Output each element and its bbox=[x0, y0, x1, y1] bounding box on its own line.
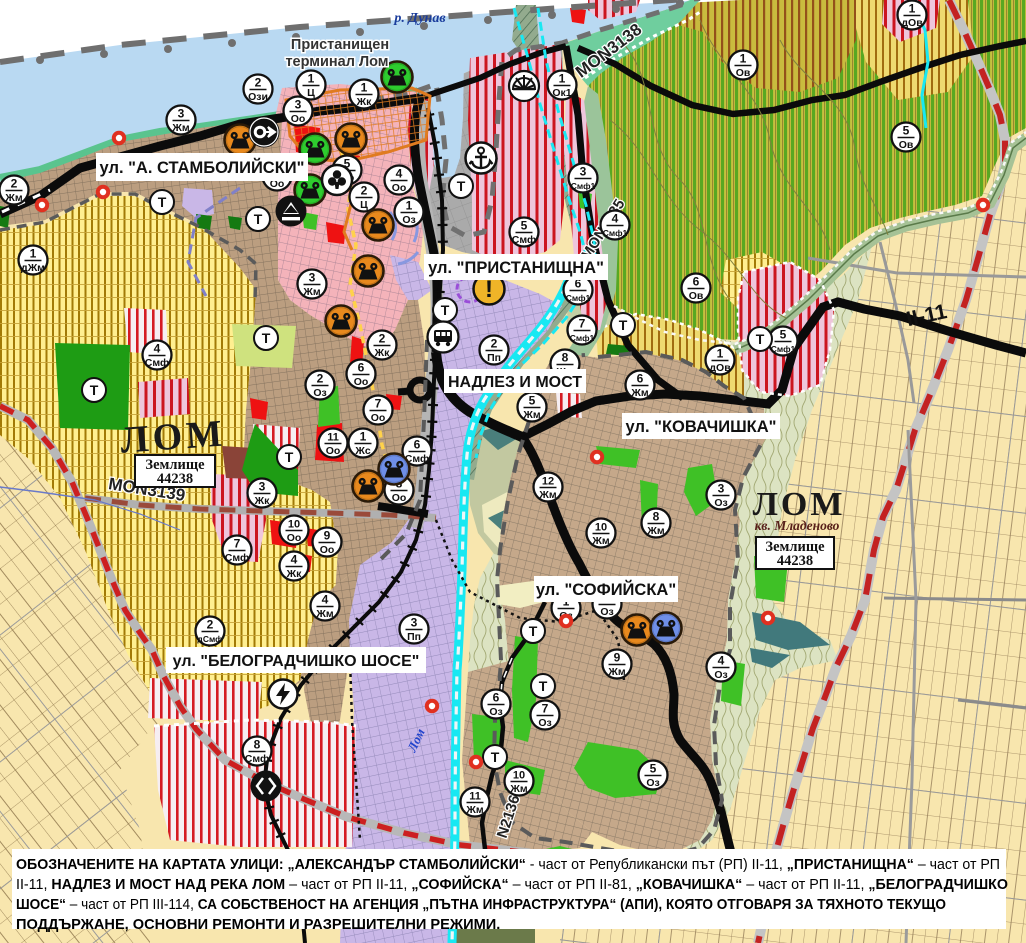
svg-text:3: 3 bbox=[411, 616, 418, 630]
svg-text:8: 8 bbox=[254, 738, 261, 752]
svg-text:ул. "ПРИСТАНИЩНА": ул. "ПРИСТАНИЩНА" bbox=[428, 259, 604, 277]
svg-text:1: 1 bbox=[406, 199, 413, 213]
svg-text:Т: Т bbox=[491, 749, 500, 765]
svg-text:Т: Т bbox=[254, 211, 263, 227]
svg-text:5: 5 bbox=[521, 219, 528, 233]
svg-text:Ок1: Ок1 bbox=[552, 87, 571, 99]
svg-text:Жм: Жм bbox=[591, 535, 609, 547]
svg-text:6: 6 bbox=[693, 275, 700, 289]
svg-text:6: 6 bbox=[493, 691, 500, 705]
svg-text:Пристанищен: Пристанищен bbox=[291, 37, 389, 53]
svg-text:1: 1 bbox=[559, 72, 566, 86]
svg-text:5: 5 bbox=[650, 762, 657, 776]
svg-text:Оо: Оо bbox=[287, 532, 302, 544]
svg-text:р. Дунав: р. Дунав bbox=[393, 11, 446, 26]
svg-text:Смф: Смф bbox=[145, 357, 169, 369]
svg-text:кв. Младеново: кв. Младеново bbox=[755, 518, 840, 533]
svg-text:ул. "СОФИЙСКА": ул. "СОФИЙСКА" bbox=[536, 580, 676, 599]
svg-text:ПОДДЪРЖАНЕ, ОСНОВНИ РЕМОНТИ И: ПОДДЪРЖАНЕ, ОСНОВНИ РЕМОНТИ И РАЗРЕШИТЕЛ… bbox=[16, 917, 500, 933]
svg-text:Оз: Оз bbox=[489, 706, 502, 718]
svg-text:Жм: Жм bbox=[538, 489, 556, 501]
svg-text:Смф1: Смф1 bbox=[566, 293, 591, 303]
svg-text:5: 5 bbox=[529, 394, 536, 408]
svg-text:7: 7 bbox=[579, 317, 586, 331]
svg-text:II-11, НАДЛЕЗ И МОСТ НАД РЕКА: II-11, НАДЛЕЗ И МОСТ НАД РЕКА ЛОМ – част… bbox=[16, 875, 1008, 893]
svg-text:Жм: Жм bbox=[171, 122, 189, 134]
svg-text:Т: Т bbox=[262, 330, 271, 346]
svg-text:Ц: Ц bbox=[360, 199, 368, 211]
svg-text:1: 1 bbox=[308, 72, 315, 86]
svg-text:Оо: Оо bbox=[392, 182, 407, 194]
svg-text:1: 1 bbox=[360, 430, 367, 444]
svg-text:2: 2 bbox=[491, 337, 498, 351]
svg-text:Жм: Жм bbox=[509, 783, 527, 795]
svg-text:НАДЛЕЗ И МОСТ: НАДЛЕЗ И МОСТ bbox=[448, 374, 582, 391]
svg-text:Оо: Оо bbox=[291, 113, 306, 125]
svg-text:2: 2 bbox=[317, 372, 324, 386]
svg-text:Оз: Оз bbox=[402, 214, 415, 226]
svg-text:Оз: Оз bbox=[714, 669, 727, 681]
svg-text:Т: Т bbox=[285, 449, 294, 465]
svg-text:3: 3 bbox=[309, 271, 316, 285]
svg-text:10: 10 bbox=[513, 770, 525, 782]
svg-text:11: 11 bbox=[327, 432, 339, 444]
svg-text:Оз: Оз bbox=[714, 497, 727, 509]
svg-text:Жк: Жк bbox=[374, 347, 390, 359]
svg-text:1: 1 bbox=[740, 52, 747, 66]
svg-text:дЖм: дЖм bbox=[21, 262, 45, 274]
svg-text:ул. "КОВАЧИШКА": ул. "КОВАЧИШКА" bbox=[626, 418, 777, 436]
svg-text:4: 4 bbox=[291, 553, 298, 567]
svg-text:Жк: Жк bbox=[254, 495, 270, 507]
svg-text:Т: Т bbox=[529, 623, 538, 639]
svg-text:Смф: Смф bbox=[512, 234, 536, 246]
svg-text:Оз: Оз bbox=[646, 777, 659, 789]
svg-text:2: 2 bbox=[361, 184, 368, 198]
svg-text:Жк: Жк bbox=[356, 96, 372, 108]
svg-text:9: 9 bbox=[614, 651, 621, 665]
svg-text:6: 6 bbox=[414, 438, 421, 452]
svg-text:Пп: Пп bbox=[407, 631, 421, 643]
svg-text:7: 7 bbox=[234, 537, 241, 551]
svg-text:4: 4 bbox=[396, 167, 403, 181]
svg-text:Жм: Жм bbox=[630, 387, 648, 399]
svg-text:Оо: Оо bbox=[371, 412, 386, 424]
svg-text:Оо: Оо bbox=[354, 376, 369, 388]
svg-text:3: 3 bbox=[178, 107, 185, 121]
svg-text:6: 6 bbox=[358, 361, 365, 375]
svg-text:2: 2 bbox=[379, 332, 386, 346]
svg-text:Ц: Ц bbox=[307, 87, 315, 99]
svg-text:Жм: Жм bbox=[522, 409, 540, 421]
svg-text:Оо: Оо bbox=[392, 492, 407, 504]
svg-text:4: 4 bbox=[154, 342, 161, 356]
svg-text:дОв: дОв bbox=[901, 17, 923, 29]
svg-text:Т: Т bbox=[158, 194, 167, 210]
svg-text:4: 4 bbox=[612, 212, 619, 226]
svg-text:1: 1 bbox=[717, 347, 724, 361]
svg-text:Жс: Жс bbox=[354, 445, 370, 457]
svg-text:4: 4 bbox=[718, 654, 725, 668]
svg-text:Жм: Жм bbox=[315, 608, 333, 620]
svg-text:!: ! bbox=[485, 276, 493, 303]
svg-text:Т: Т bbox=[90, 382, 99, 398]
svg-text:Жм: Жм bbox=[4, 192, 22, 204]
svg-text:1: 1 bbox=[361, 81, 368, 95]
svg-text:Т: Т bbox=[441, 302, 450, 318]
svg-text:дОв: дОв bbox=[709, 362, 731, 374]
svg-text:Оо: Оо bbox=[326, 445, 341, 457]
svg-text:Жм: Жм bbox=[646, 525, 664, 537]
svg-text:2: 2 bbox=[255, 76, 262, 90]
svg-text:12: 12 bbox=[542, 476, 554, 488]
svg-text:ул. "БЕЛОГРАДЧИШКО ШОСЕ": ул. "БЕЛОГРАДЧИШКО ШОСЕ" bbox=[173, 653, 420, 670]
svg-text:дСмф: дСмф bbox=[197, 634, 223, 644]
svg-text:ШОСЕ“ – част от РП III-114, СА: ШОСЕ“ – част от РП III-114, СА СОБСТВЕНО… bbox=[16, 897, 946, 913]
svg-text:8: 8 bbox=[562, 351, 569, 365]
svg-text:ул. "А. СТАМБОЛИЙСКИ": ул. "А. СТАМБОЛИЙСКИ" bbox=[100, 158, 305, 177]
svg-text:Смф: Смф bbox=[225, 552, 249, 564]
svg-text:Смф1: Смф1 bbox=[570, 333, 595, 343]
svg-text:Ов: Ов bbox=[736, 67, 751, 79]
svg-text:Ов: Ов bbox=[689, 290, 704, 302]
svg-text:Т: Т bbox=[457, 178, 466, 194]
svg-text:9: 9 bbox=[324, 529, 331, 543]
svg-text:Смф1: Смф1 bbox=[603, 228, 628, 238]
svg-text:Жк: Жк bbox=[286, 568, 302, 580]
svg-text:5: 5 bbox=[903, 124, 910, 138]
svg-text:Ози: Ози bbox=[248, 91, 268, 103]
svg-text:1: 1 bbox=[30, 247, 37, 261]
svg-text:Смф: Смф bbox=[245, 753, 269, 765]
svg-text:ОБОЗНАЧЕНИТЕ НА КАРТАТА УЛИЦИ:: ОБОЗНАЧЕНИТЕ НА КАРТАТА УЛИЦИ: „АЛЕКСАНД… bbox=[16, 855, 1000, 873]
svg-text:3: 3 bbox=[718, 482, 725, 496]
svg-text:Оз: Оз bbox=[538, 717, 551, 729]
svg-text:Смф1: Смф1 bbox=[771, 344, 796, 354]
svg-text:Оз: Оз bbox=[313, 387, 326, 399]
svg-text:4: 4 bbox=[322, 593, 329, 607]
svg-text:7: 7 bbox=[542, 702, 549, 716]
svg-text:6: 6 bbox=[637, 372, 644, 386]
svg-text:2: 2 bbox=[11, 177, 18, 191]
svg-text:Жм: Жм bbox=[302, 286, 320, 298]
svg-text:Пп: Пп bbox=[487, 352, 501, 364]
svg-text:3: 3 bbox=[259, 480, 266, 494]
svg-text:8: 8 bbox=[653, 510, 660, 524]
svg-text:Жм: Жм bbox=[465, 804, 483, 816]
svg-text:Смф1: Смф1 bbox=[571, 181, 596, 191]
svg-text:10: 10 bbox=[595, 522, 607, 534]
svg-text:11: 11 bbox=[469, 791, 481, 803]
svg-text:1: 1 bbox=[909, 2, 916, 16]
svg-text:Т: Т bbox=[756, 331, 765, 347]
svg-text:44238: 44238 bbox=[777, 553, 813, 569]
svg-text:10: 10 bbox=[288, 519, 300, 531]
svg-text:44238: 44238 bbox=[157, 471, 193, 487]
svg-text:Оз: Оз bbox=[600, 606, 613, 618]
svg-text:Оо: Оо bbox=[320, 544, 335, 556]
svg-text:5: 5 bbox=[780, 328, 787, 342]
svg-text:Жм: Жм bbox=[607, 666, 625, 678]
svg-text:терминал Лом: терминал Лом bbox=[285, 54, 388, 70]
svg-text:3: 3 bbox=[580, 165, 587, 179]
svg-text:7: 7 bbox=[375, 397, 382, 411]
svg-text:2: 2 bbox=[207, 618, 214, 632]
svg-text:Ов: Ов bbox=[899, 139, 914, 151]
svg-text:3: 3 bbox=[295, 98, 302, 112]
svg-text:Т: Т bbox=[619, 317, 628, 333]
svg-text:Т: Т bbox=[539, 678, 548, 694]
